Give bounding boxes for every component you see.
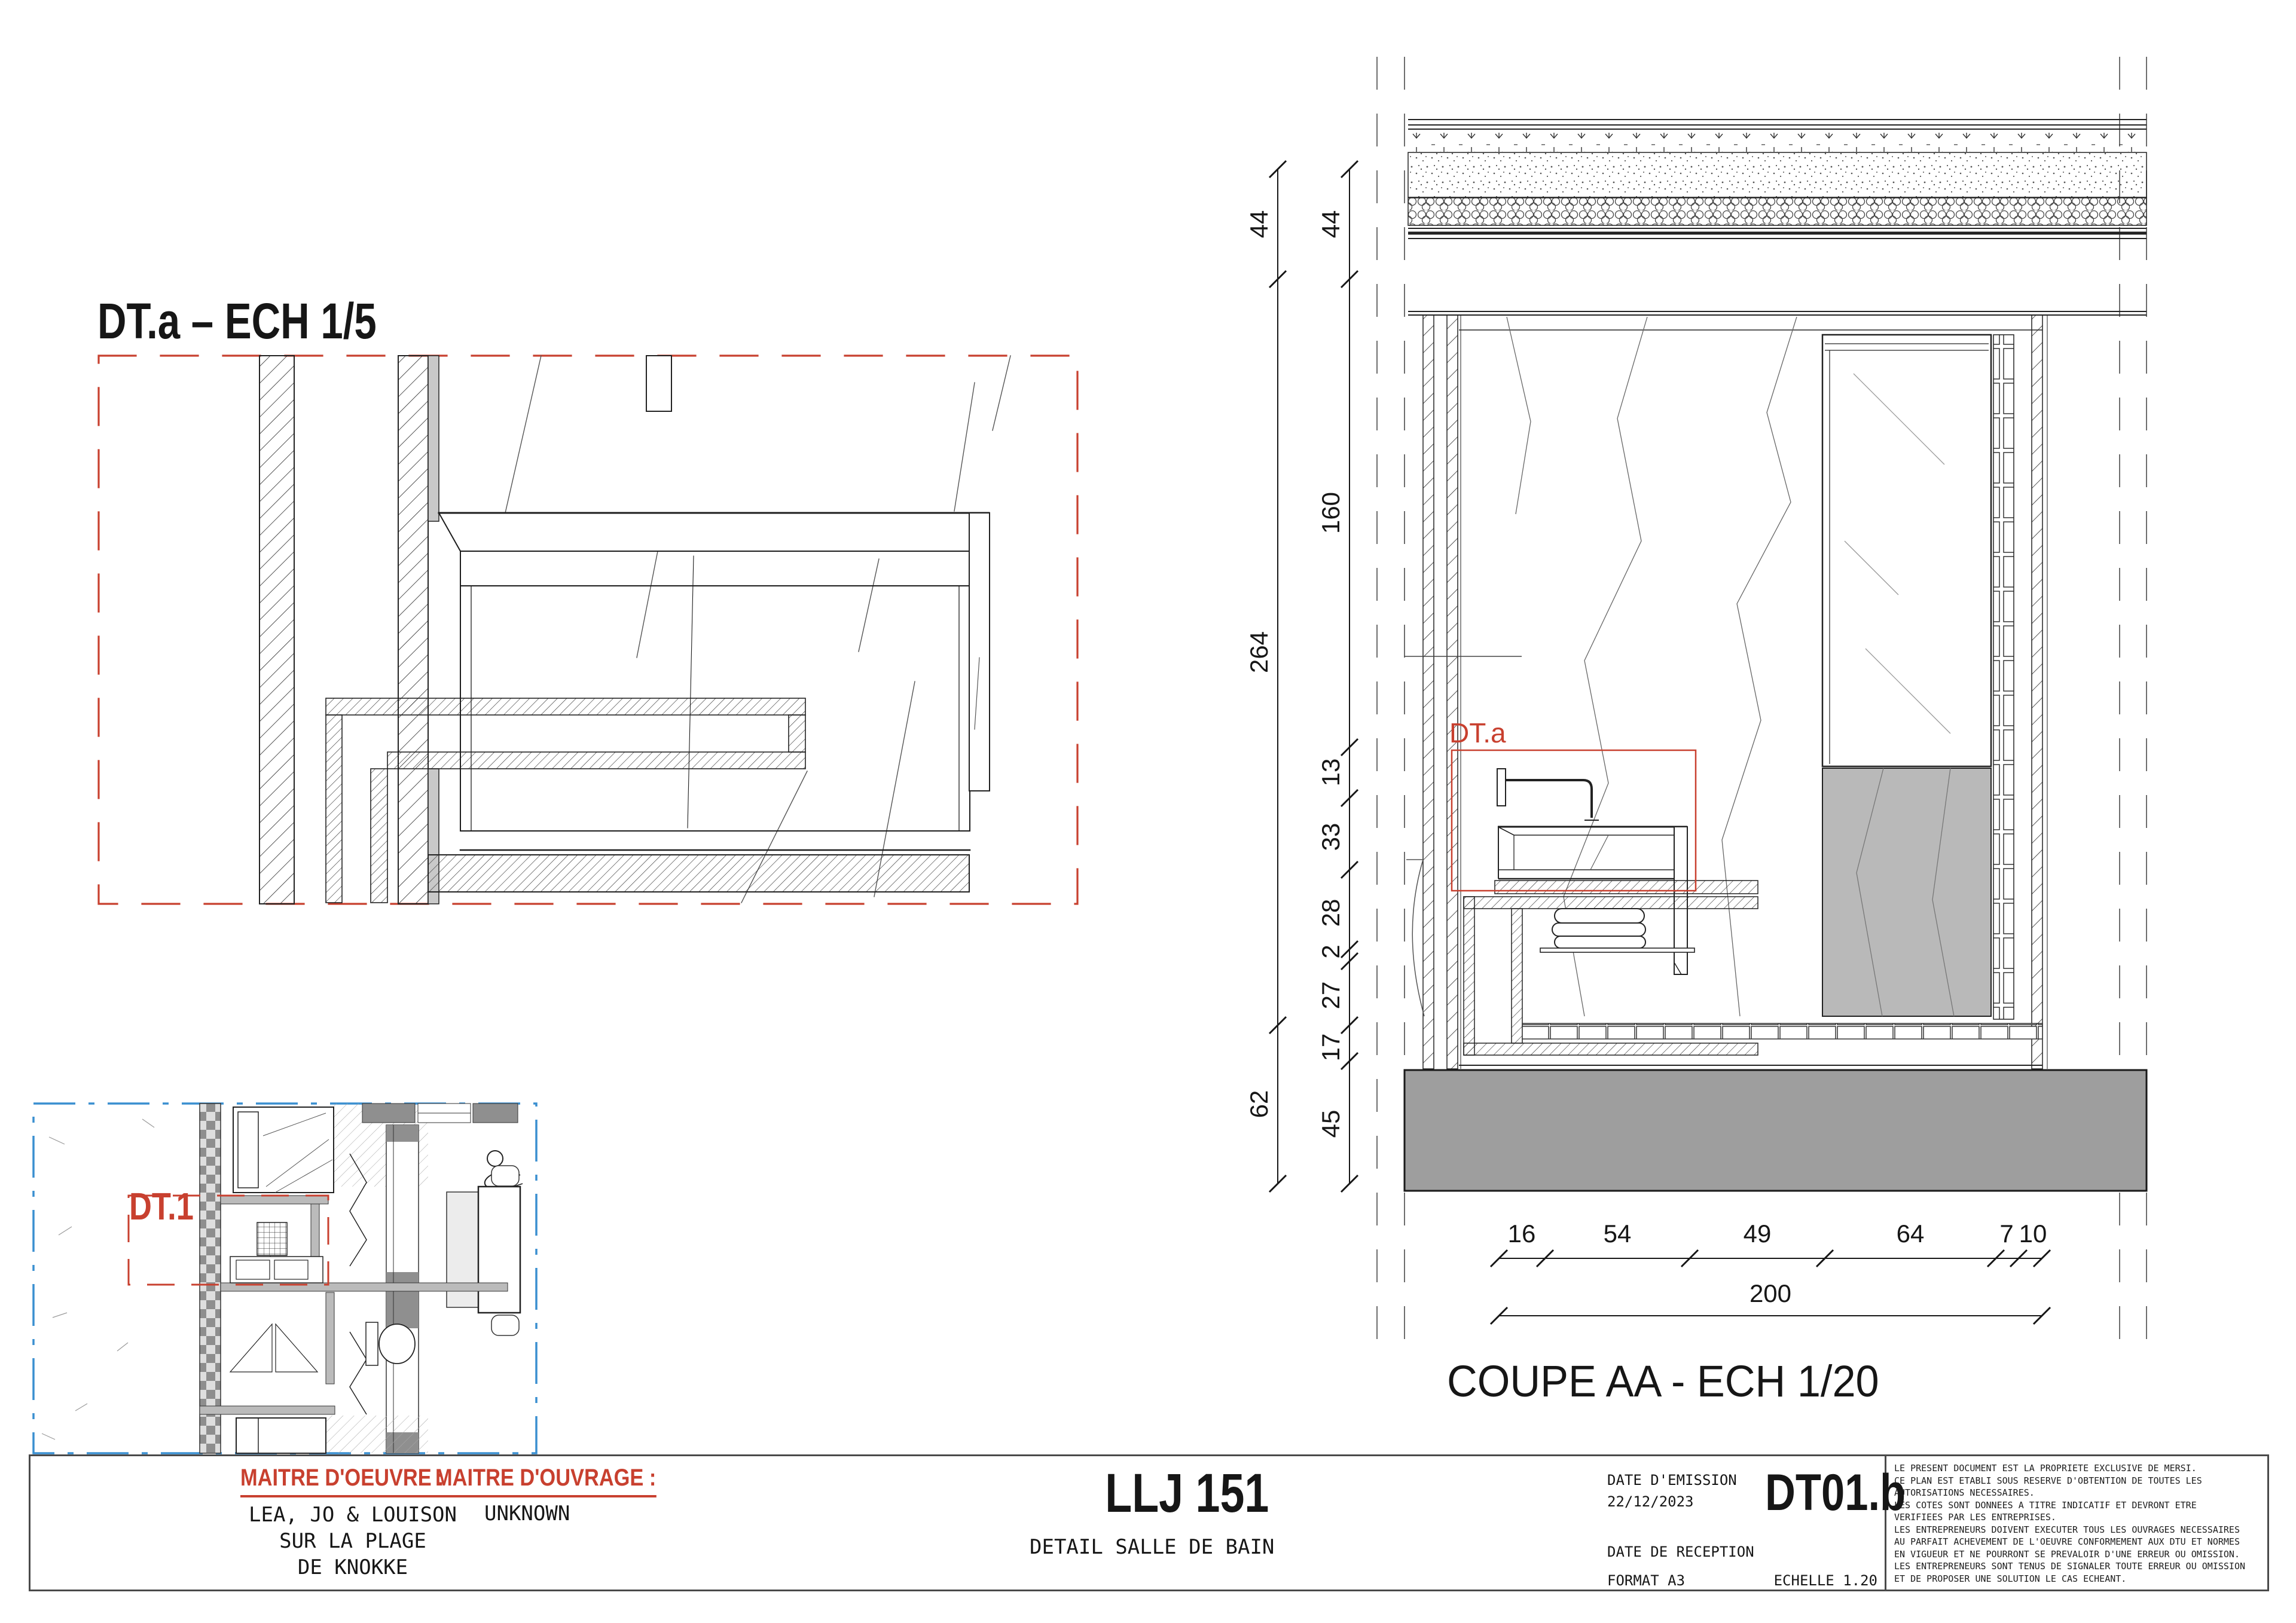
dim-outer-62: 62	[1245, 1090, 1273, 1118]
detail-dta-drawing: DT.a – ECH 1/5	[97, 294, 1077, 904]
legal-line: AU PARFAIT ACHEVEMENT DE L'OEUVRE CONFOR…	[1894, 1536, 2261, 1548]
cad-linework: DT.a – ECH 1/5	[0, 0, 2296, 1623]
sheet-code-text: DT01.b	[1765, 1463, 1906, 1523]
detail-red-boundary	[99, 356, 1077, 904]
section-detail-label: DT.a	[1449, 717, 1506, 748]
format-label: FORMAT A3	[1607, 1572, 1685, 1589]
maitre-ouvrage-label: MAITRE D'OUVRAGE :	[435, 1465, 656, 1497]
washbasin	[1464, 769, 1758, 1055]
legal-notes: LE PRESENT DOCUMENT EST LA PROPRIETE EXC…	[1894, 1462, 2261, 1585]
dim-inner-27: 27	[1317, 982, 1345, 1010]
dim-inner-17: 17	[1317, 1034, 1345, 1062]
dim-inner-2: 2	[1317, 945, 1345, 958]
dim-bottom-54: 54	[1604, 1219, 1632, 1248]
maitre-oeuvre-value: LEA, JO & LOUISON SUR LA PLAGE DE KNOKKE	[236, 1502, 469, 1581]
dim-inner-13: 13	[1317, 759, 1345, 787]
project-title: DETAIL SALLE DE BAIN	[1030, 1535, 1274, 1559]
section-title: COUPE AA - ECH 1/20	[1447, 1357, 1879, 1406]
dim-bottom-7b: 7	[1999, 1219, 2013, 1248]
dim-inner-28: 28	[1317, 899, 1345, 927]
maitre-ouvrage-header: MAITRE D'OUVRAGE :	[435, 1465, 692, 1497]
dim-outer-44: 44	[1245, 210, 1273, 239]
maitre-ouvrage-value: UNKNOWN	[484, 1502, 570, 1526]
legal-line: ET DE PROPOSER UNE SOLUTION LE CAS ECHEA…	[1894, 1573, 2261, 1585]
date-reception-label: DATE DE RECEPTION	[1607, 1543, 1754, 1560]
dim-inner-160: 160	[1317, 492, 1345, 534]
dim-inner-45: 45	[1317, 1110, 1345, 1138]
plan-detail-label: DT.1	[129, 1185, 194, 1228]
floor-plan: DT.1	[33, 1104, 536, 1453]
project-code-text: LLJ 151	[1105, 1462, 1269, 1525]
floor-slab	[1405, 1070, 2147, 1191]
dim-inner-44: 44	[1317, 210, 1345, 239]
dim-outer-264: 264	[1245, 631, 1273, 673]
legal-line: LES ENTREPRENEURS SONT TENUS DE SIGNALER…	[1894, 1560, 2261, 1573]
legal-line: LES ENTREPRENEURS DOIVENT EXECUTER TOUS …	[1894, 1524, 2261, 1536]
date-emission-label: DATE D'EMISSION	[1607, 1472, 1737, 1488]
legal-line: EN VIGUEUR ET NE POURRONT SE PREVALOIR D…	[1894, 1548, 2261, 1561]
detail-title: DT.a – ECH 1/5	[97, 294, 377, 350]
stone-panel	[1822, 768, 1991, 1016]
section-drawing: DT.a	[1377, 57, 2147, 1348]
dim-total-200: 200	[1750, 1279, 1791, 1307]
floor-assembly	[1408, 120, 2147, 239]
scale-label: ECHELLE 1.20	[1698, 1572, 1877, 1589]
dim-bottom-16: 16	[1508, 1219, 1536, 1248]
legal-line: LES COTES SONT DONNEES A TITRE INDICATIF…	[1894, 1499, 2261, 1512]
maitre-oeuvre-label: MAITRE D'OEUVRE :	[240, 1465, 444, 1497]
dim-bottom-10: 10	[2019, 1219, 2047, 1248]
dim-bottom-7: 64	[1897, 1219, 1925, 1248]
oeuvre-line-3: DE KNOKKE	[236, 1554, 469, 1581]
drawing-sheet: DT.a – ECH 1/5	[0, 0, 2296, 1623]
mirror	[1822, 335, 1991, 766]
legal-line: AUTORISATIONS NECESSAIRES.	[1894, 1487, 2261, 1499]
project-code: LLJ 151	[1058, 1462, 1315, 1525]
date-emission-value: 22/12/2023	[1607, 1493, 1694, 1510]
legal-line: VERIFIEES PAR LES ENTREPRISES.	[1894, 1511, 2261, 1524]
oeuvre-line-1: LEA, JO & LOUISON	[236, 1502, 469, 1528]
dim-inner-33: 33	[1317, 823, 1345, 851]
legal-line: CE PLAN EST ETABLI SOUS RESERVE D'OBTENT…	[1894, 1475, 2261, 1487]
legal-line: LE PRESENT DOCUMENT EST LA PROPRIETE EXC…	[1894, 1462, 2261, 1475]
dim-bottom-49: 49	[1744, 1219, 1772, 1248]
oeuvre-line-2: SUR LA PLAGE	[236, 1528, 469, 1554]
